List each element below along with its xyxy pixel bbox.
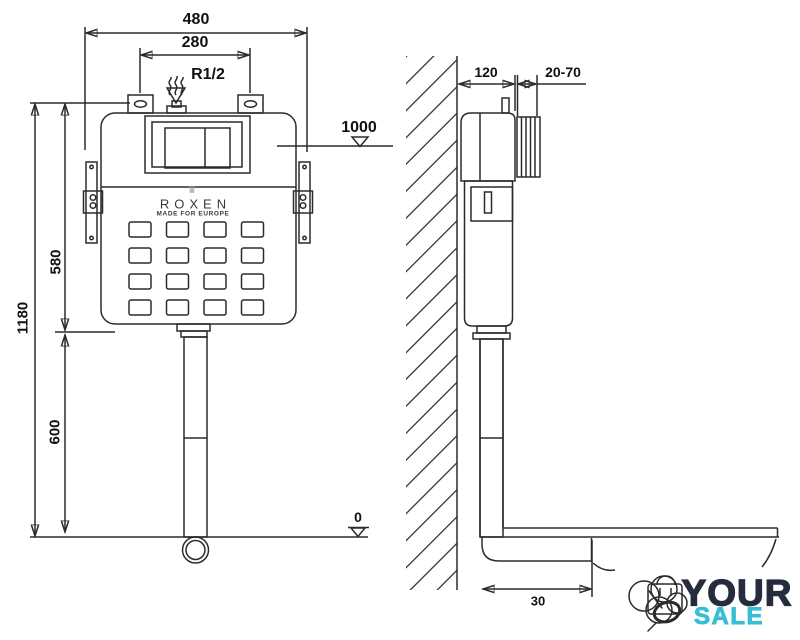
dim-total-width: 480 <box>183 12 210 28</box>
side-view <box>457 56 779 597</box>
dim-total-height: 1180 <box>16 302 31 335</box>
left-bracket <box>84 162 103 243</box>
yoursale-logo-icon <box>629 576 687 631</box>
brand-name: ROXEN <box>155 197 231 212</box>
side-bracket <box>471 187 513 221</box>
cistern-body <box>101 113 296 324</box>
dim-outlet-offset: 30 <box>531 595 545 608</box>
dim-level-1000: 1000 <box>341 120 377 136</box>
side-pipe-and-bend <box>473 326 779 570</box>
dim-lower-height: 600 <box>48 419 63 444</box>
side-cistern-body <box>461 98 515 326</box>
flush-pipe-front <box>177 324 210 563</box>
grid-openings <box>129 222 264 315</box>
cistern-drawing <box>0 0 800 640</box>
click-hand-icon <box>648 591 682 631</box>
crown-icon: ♛ <box>188 186 197 196</box>
front-dimension-lines <box>35 33 306 536</box>
level-marker-1000 <box>277 137 393 147</box>
flush-frame-striped <box>517 117 540 177</box>
mounting-tabs <box>128 95 263 113</box>
watermark-word-sale: SALE <box>694 605 764 629</box>
dim-inner-width: 280 <box>182 35 209 51</box>
side-dimension-lines <box>459 84 591 589</box>
access-panel <box>145 116 250 173</box>
level-marker-zero <box>348 528 369 537</box>
brand-tagline: MADE FOR EUROPE <box>157 211 230 218</box>
water-inlet-icon <box>167 76 185 103</box>
dim-inlet-thread: R1/2 <box>191 67 225 83</box>
dim-adjust-range: 20-70 <box>545 65 581 79</box>
technical-drawing-page: 480 280 R1/2 1000 0 580 1180 600 120 20-… <box>0 0 800 640</box>
front-view <box>30 27 393 563</box>
dim-level-zero: 0 <box>354 510 362 524</box>
front-extension-lines <box>30 27 307 332</box>
dim-upper-height: 580 <box>49 249 64 274</box>
dim-depth: 120 <box>474 65 497 79</box>
